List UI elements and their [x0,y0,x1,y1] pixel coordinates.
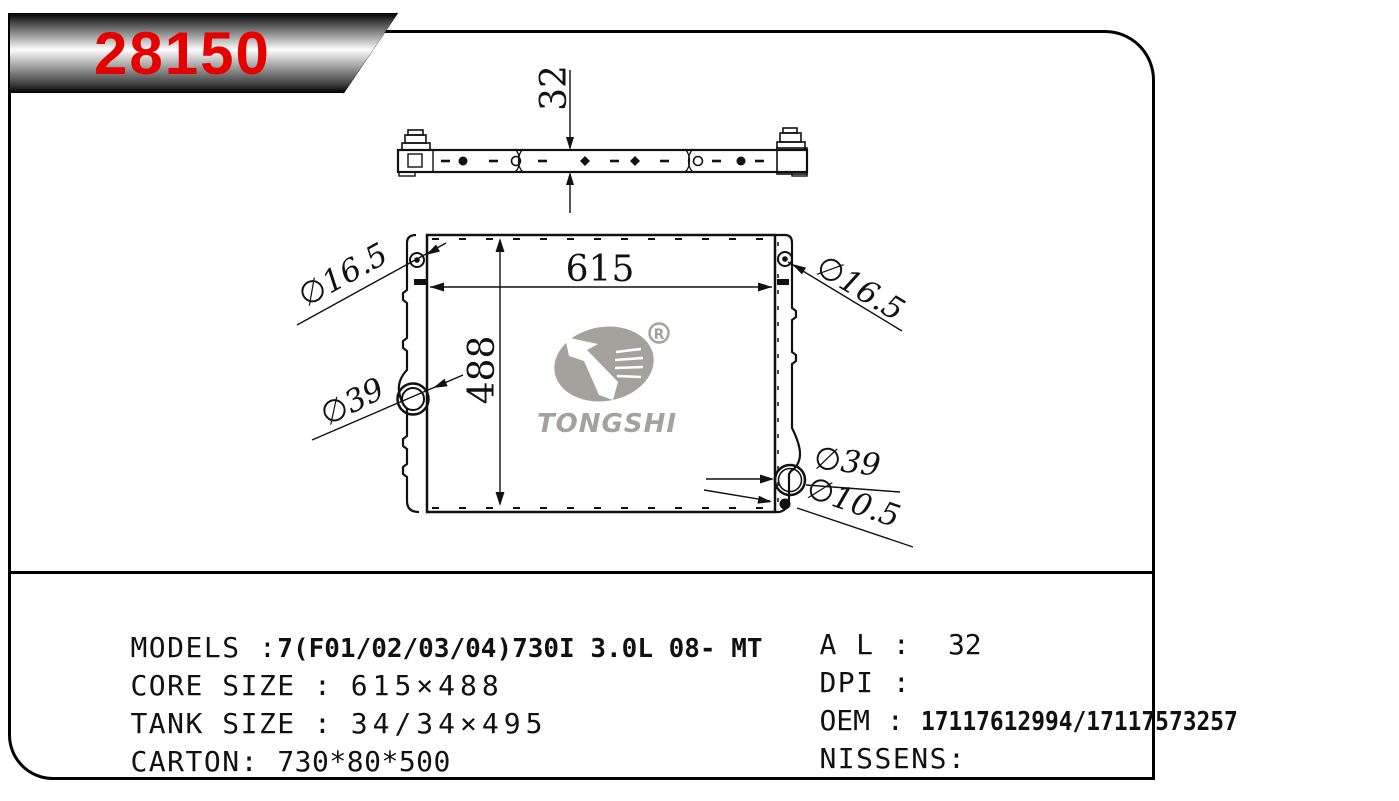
brand-name: TONGSHI [537,409,677,439]
dim-488-text: 488 [462,336,503,405]
spec-row-nissens: NISSENS: [752,714,966,801]
al-value: 32 [948,628,982,661]
part-number-banner: 28150 [10,13,398,93]
registered-mark: R [654,327,665,343]
top-view-bar [398,128,807,176]
dia-hole-top-right-label: ∅16.5 [810,248,911,328]
brand-logo: R TONGSHI [537,319,677,439]
catalog-page: 32 615 488 ∅16.5 ∅16.5 ∅39 ∅39 ∅10.5 R [0,0,1399,801]
spec-row-carton: CARTON: 730*80*500 [63,717,451,801]
nissens-label: NISSENS: [819,742,966,775]
carton-label: CARTON: [130,745,259,778]
dim-32-text: 32 [534,65,575,111]
dim-615-text: 615 [566,249,635,290]
carton-value: 730*80*500 [277,745,451,778]
part-number: 28150 [94,19,271,88]
dia-hole-top-left-label: ∅16.5 [292,236,393,314]
dia-port-left-label: ∅39 [315,371,391,433]
oem-value: 17117612994/17117573257 [921,707,1238,737]
